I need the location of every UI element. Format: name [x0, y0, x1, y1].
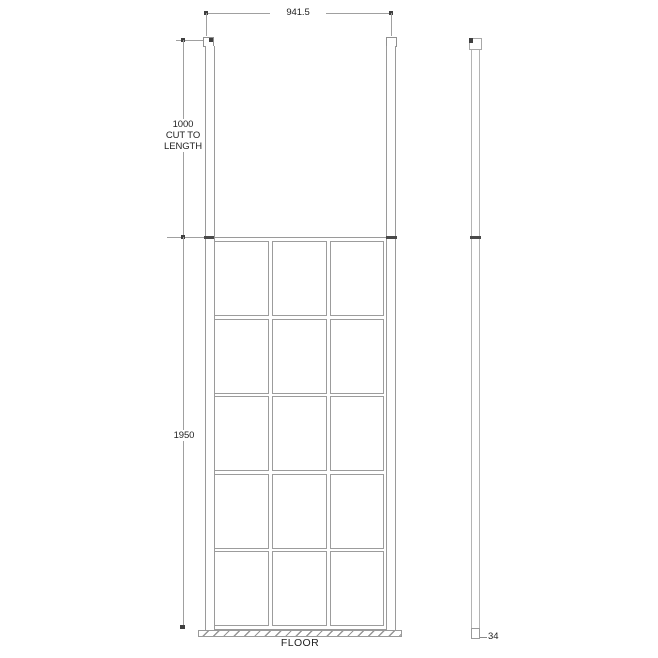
floor-strip: [198, 630, 402, 637]
post-height-dimension-label: 1000 CUT TO LENGTH: [157, 119, 209, 152]
ceiling-post-right: [386, 46, 396, 630]
screen-height-dimension-label: 1950: [164, 430, 204, 441]
side-view-junction: [470, 236, 481, 239]
width-dimension-label: 941.5: [270, 7, 326, 18]
glass-pane: [330, 319, 385, 394]
extension-line: [167, 237, 204, 238]
glass-pane: [272, 396, 327, 471]
post-screen-junction-left: [204, 236, 214, 239]
glass-pane: [272, 551, 327, 626]
glass-pane: [330, 241, 385, 316]
profile-depth-label: 34: [488, 632, 499, 642]
extension-line: [206, 13, 207, 36]
glass-pane: [214, 396, 269, 471]
post-height-value: 1000: [157, 119, 209, 130]
post-height-note-1: CUT TO: [157, 130, 209, 141]
glass-pane: [272, 241, 327, 316]
glass-pane: [214, 241, 269, 316]
glass-pane: [272, 474, 327, 549]
post-height-note-2: LENGTH: [157, 141, 209, 152]
extension-line: [391, 13, 392, 36]
glass-pane: [272, 319, 327, 394]
technical-drawing: 941.5 1000 CUT TO LENGTH 1950 FLOOR 34: [0, 0, 658, 658]
dim-tick: [180, 625, 185, 629]
floor-label: FLOOR: [270, 637, 330, 649]
side-view-bottom-profile: [471, 628, 481, 639]
leader-line: [480, 637, 487, 638]
dim-tick: [209, 38, 213, 42]
side-view-profile: [471, 50, 481, 628]
ceiling-post-left: [205, 46, 215, 630]
glass-pane: [330, 474, 385, 549]
glass-pane: [330, 551, 385, 626]
dim-tick: [469, 38, 474, 43]
pane-grid: [214, 241, 385, 626]
glass-pane: [214, 474, 269, 549]
glass-pane: [330, 396, 385, 471]
glass-pane: [214, 319, 269, 394]
post-screen-junction-right: [386, 236, 397, 239]
glass-pane: [214, 551, 269, 626]
